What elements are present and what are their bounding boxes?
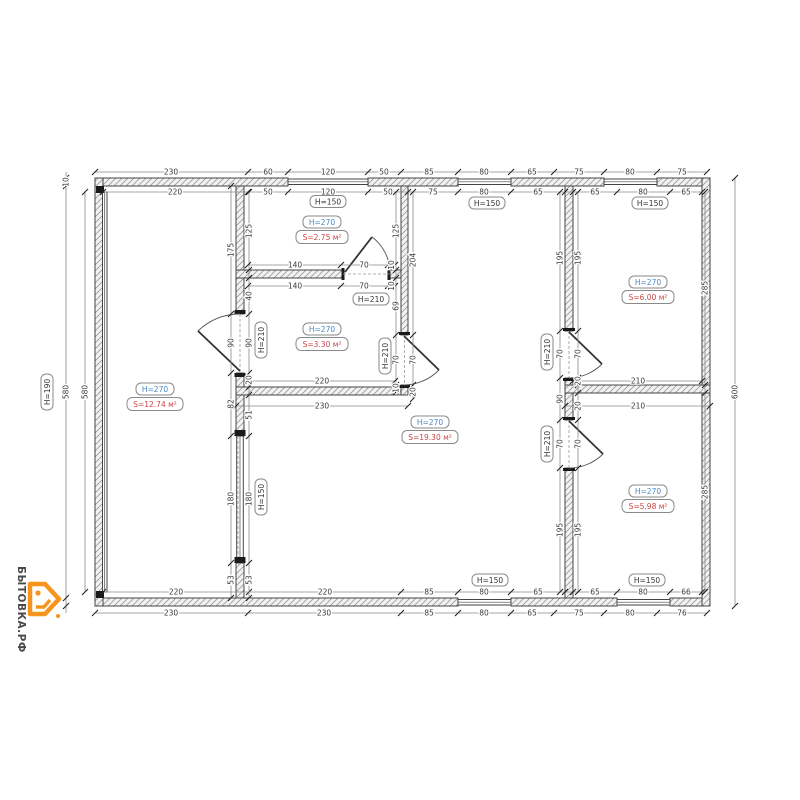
dim-label: 70	[359, 261, 369, 270]
logo: БЫТОВКА.РФ	[15, 566, 60, 653]
dim-label: 75	[574, 168, 584, 177]
room-area-label: S=12.74 м²	[133, 400, 177, 409]
dim-label: 51	[245, 410, 254, 420]
dim-label: 75	[677, 168, 687, 177]
dim-label: 80	[479, 168, 489, 177]
door-height-label-room2: H=210	[353, 293, 389, 305]
dim-label: 20	[245, 375, 254, 385]
dim-label: 10	[387, 260, 396, 270]
dim-label: 82	[227, 399, 236, 409]
room-label-hall: H=270 S=19.30 м²	[402, 416, 458, 444]
dim-label: 90	[227, 338, 236, 348]
window-height-text: H=150	[257, 484, 266, 510]
dim-label: 85	[424, 588, 434, 597]
dim-label: 70	[359, 282, 369, 291]
dim-label: 210	[631, 402, 646, 411]
room-label-top-small: H=270 S=2.75 м²	[296, 216, 348, 244]
dim-label: 80	[479, 188, 489, 197]
dim-label: 204	[409, 253, 418, 268]
dim-label: 600	[731, 385, 740, 400]
room-area-label: S=5.98 м²	[629, 502, 668, 511]
room-label-bottom-right: H=270 S=5.98 м²	[622, 485, 674, 513]
door-wall-c-upper	[563, 328, 602, 381]
dim-label: 80	[479, 588, 489, 597]
dim-label: 70	[574, 439, 583, 449]
door-height-text: H=210	[257, 327, 266, 353]
door-height-text: H=210	[543, 339, 552, 365]
door-room2	[342, 237, 391, 280]
room-label-middle-small: H=270 S=3.30 м²	[296, 323, 348, 351]
dim-label: 90	[556, 394, 565, 404]
floor-plan-canvas: 230 60 120 50 85 80 65 75 80 75 220 50 1…	[0, 0, 800, 800]
dim-label: 65	[681, 188, 691, 197]
dim-label: 76	[677, 609, 687, 618]
window-height-label-bottom-1: H=150	[472, 574, 508, 586]
dim-label: 65	[533, 588, 543, 597]
room-area-label: S=19.30 м²	[408, 433, 452, 442]
dim-label: 20	[574, 401, 583, 411]
dim-label: 53	[227, 575, 236, 585]
room-area-label: S=3.30 м²	[303, 340, 342, 349]
dim-label: 195	[556, 251, 565, 266]
dim-label: 140	[288, 261, 303, 270]
dim-label: 180	[227, 492, 236, 507]
dim-label: 180	[245, 492, 254, 507]
window-height-label-left: H=190	[41, 374, 53, 410]
dim-label: 60	[263, 168, 273, 177]
dim-label: 220	[169, 588, 184, 597]
room-height-label: H=270	[309, 325, 335, 334]
dim-label: 175	[227, 243, 236, 258]
dim-label: 195	[574, 523, 583, 538]
dim-label: 65	[527, 168, 537, 177]
dim-label: 230	[164, 168, 179, 177]
dim-label: 70	[409, 355, 418, 365]
window-height-label-top-1: H=150	[310, 196, 346, 208]
dim-label: 80	[638, 588, 648, 597]
room-area-label: S=6.00 м²	[629, 293, 668, 302]
room-label-left: H=270 S=12.74 м²	[127, 383, 183, 411]
dim-label: 285	[701, 281, 710, 296]
dim-label: 65	[590, 588, 600, 597]
dim-label: 20	[574, 376, 583, 386]
window-height-text: H=150	[634, 576, 660, 585]
window-height-text: H=150	[477, 576, 503, 585]
dim-label: 230	[315, 402, 330, 411]
dim-label: 53	[245, 575, 254, 585]
window-height-label-top-2: H=150	[469, 197, 505, 209]
room-height-label: H=270	[309, 218, 335, 227]
interior-walls	[236, 186, 710, 598]
door-height-label-wall-c-upper: H=210	[541, 334, 553, 370]
window-bottom-1	[458, 600, 511, 606]
door-height-text: H=210	[543, 431, 552, 457]
dim-label: 75	[428, 188, 438, 197]
logo-icon	[30, 584, 60, 618]
door-wall-c-lower	[563, 417, 603, 471]
dim-label: 70	[392, 355, 401, 365]
dim-label: 90	[245, 338, 254, 348]
window-top-1	[288, 179, 368, 185]
dim-label: 70	[556, 349, 565, 359]
dim-label: 50	[379, 168, 389, 177]
window-height-label-top-3: H=150	[632, 197, 668, 209]
room-height-label: H=270	[635, 278, 661, 287]
window-height-text: H=150	[637, 199, 663, 208]
dim-label: 65	[527, 609, 537, 618]
dim-label: 230	[164, 609, 179, 618]
dim-label: 220	[168, 188, 183, 197]
window-height-label-bottom-2: H=150	[629, 574, 665, 586]
door-height-label-wall-c-lower: H=210	[541, 426, 553, 462]
window-bottom-2	[617, 600, 670, 606]
dim-label: 50	[383, 188, 393, 197]
dim-label: 20	[409, 387, 418, 397]
dim-label: 85	[424, 609, 434, 618]
dim-label: 75	[574, 609, 584, 618]
dim-label: 69	[392, 301, 401, 311]
door-height-label-wall-b: H=210	[379, 338, 391, 374]
dim-label: 65	[590, 188, 600, 197]
dim-label: 10	[387, 281, 396, 291]
room-height-label: H=270	[142, 385, 168, 394]
floor-plan-page: 230 60 120 50 85 80 65 75 80 75 220 50 1…	[0, 0, 800, 800]
dim-label: 70	[574, 349, 583, 359]
dim-label: 285	[701, 485, 710, 500]
dim-label: 10	[392, 383, 401, 393]
window-top-2	[458, 179, 511, 185]
dim-label: 210	[631, 377, 646, 386]
dim-label: 195	[556, 523, 565, 538]
window-height-text: H=150	[315, 198, 341, 207]
dim-label: 580	[81, 385, 90, 400]
dim-label: 580	[62, 385, 71, 400]
dim-label: 65	[533, 188, 543, 197]
dim-label: 80	[625, 609, 635, 618]
door-height-text: H=210	[381, 343, 390, 369]
dim-label: 85	[424, 168, 434, 177]
dim-label: 125	[392, 224, 401, 239]
dim-label: 220	[315, 377, 330, 386]
room-height-label: H=270	[417, 418, 443, 427]
room-label-top-right: H=270 S=6.00 м²	[622, 276, 674, 304]
door-height-label-wall-a: H=210	[255, 322, 267, 358]
window-top-3	[604, 179, 657, 185]
dim-label: 80	[479, 609, 489, 618]
door-wall-a	[198, 310, 246, 377]
dim-label: 230	[317, 609, 332, 618]
room-height-label: H=270	[635, 487, 661, 496]
door-height-text: H=210	[358, 295, 384, 304]
dim-label: 70	[556, 439, 565, 449]
dim-label: 220	[318, 588, 333, 597]
dim-label: 195	[574, 251, 583, 266]
dim-label: 66	[681, 588, 691, 597]
logo-text: БЫТОВКА.РФ	[15, 566, 27, 653]
room-area-label: S=2.75 м²	[303, 233, 342, 242]
window-height-text: H=150	[474, 199, 500, 208]
dim-label: 125	[245, 224, 254, 239]
dim-label: 80	[625, 168, 635, 177]
window-height-label-inner: H=150	[255, 479, 267, 515]
dim-label: 40	[245, 291, 254, 301]
door-wall-b	[399, 332, 439, 388]
dim-label: 10	[62, 177, 71, 187]
window-height-text: H=190	[43, 379, 52, 405]
dim-label: 140	[288, 282, 303, 291]
dim-label: 80	[638, 188, 648, 197]
dim-label: 120	[321, 168, 336, 177]
dim-label: 50	[263, 188, 273, 197]
